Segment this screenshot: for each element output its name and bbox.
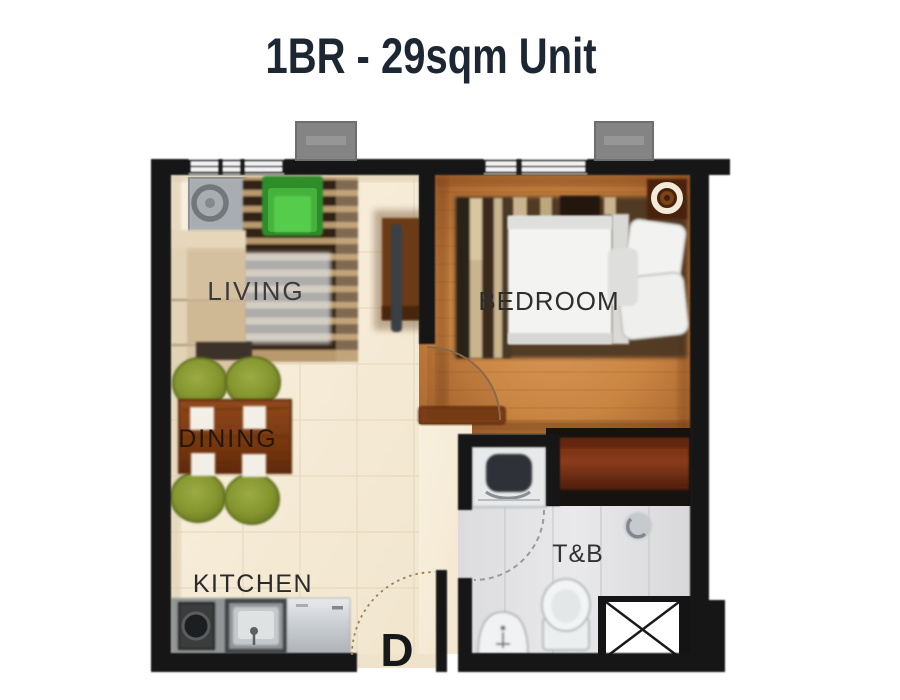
svg-text:DINING: DINING — [178, 425, 278, 453]
svg-text:LIVING: LIVING — [207, 276, 304, 306]
svg-text:D: D — [380, 624, 413, 676]
svg-text:KITCHEN: KITCHEN — [193, 570, 313, 598]
svg-text:BEDROOM: BEDROOM — [478, 286, 619, 316]
svg-text:1BR - 29sqm Unit: 1BR - 29sqm Unit — [265, 28, 596, 84]
svg-text:T&B: T&B — [552, 540, 604, 568]
